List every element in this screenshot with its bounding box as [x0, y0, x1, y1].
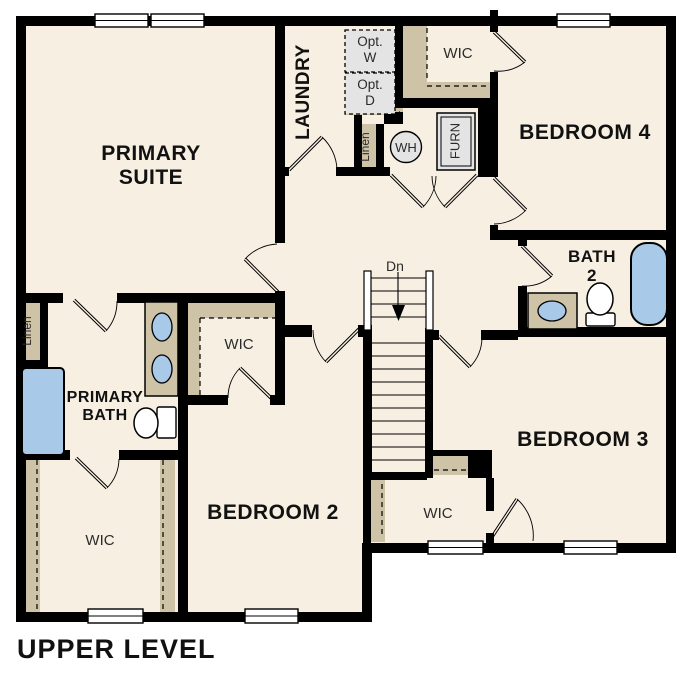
label-linen-primary-line: Linen	[20, 316, 34, 345]
stair-rail	[364, 271, 371, 330]
wall	[40, 303, 48, 363]
wall	[362, 543, 372, 622]
furnace-label: FURN	[447, 123, 462, 159]
wall	[518, 240, 527, 246]
label-stairs-dn: Dn	[386, 258, 404, 274]
wall	[395, 23, 403, 108]
floor-plan-drawing: Opt.WOpt.DWHFURNPRIMARYSUITELAUNDRYWICBE…	[0, 0, 687, 687]
casework-shelf	[188, 303, 200, 397]
wall	[425, 328, 433, 478]
wall	[119, 450, 188, 460]
label-wic-primary-line: WIC	[85, 532, 114, 549]
label-laundry: LAUNDRY	[293, 44, 314, 140]
wall	[362, 543, 676, 553]
wall	[178, 293, 188, 622]
label-wic-bedroom2-line: WIC	[224, 336, 253, 353]
label-bedroom-3-line: BEDROOM 3	[517, 428, 649, 451]
wall	[16, 293, 63, 303]
wall	[365, 472, 427, 480]
wall	[490, 230, 676, 240]
optional-dryer-label: D	[365, 93, 375, 108]
stair-rail	[426, 271, 433, 330]
wall	[16, 360, 48, 368]
bath2-tub-icon	[631, 243, 667, 325]
wall	[285, 325, 312, 337]
casework-shelf	[160, 455, 175, 612]
floor-plan-page: Opt.WOpt.DWHFURNPRIMARYSUITELAUNDRYWICBE…	[0, 0, 687, 687]
optional-dryer-label: Opt.	[357, 77, 383, 92]
optional-washer-label: Opt.	[357, 34, 383, 49]
label-bedroom-4-line: BEDROOM 4	[519, 121, 651, 144]
wall	[363, 478, 371, 553]
label-bedroom-2-line: BEDROOM 2	[207, 501, 339, 524]
label-primary-bath-line: BATH	[82, 407, 127, 424]
label-wic-bedroom4: WIC	[443, 45, 472, 62]
label-bedroom-3: BEDROOM 3	[517, 428, 649, 451]
label-bedroom-2: BEDROOM 2	[207, 501, 339, 524]
wall	[275, 167, 289, 176]
label-primary-bath-line: PRIMARY	[67, 389, 144, 406]
sink-icon	[538, 301, 566, 321]
sink-icon	[152, 355, 172, 383]
label-wic-primary: WIC	[85, 532, 114, 549]
label-bath-2-line: BATH	[568, 247, 616, 266]
wall	[275, 303, 285, 405]
wall	[403, 98, 498, 108]
wall	[468, 452, 492, 478]
optional-washer-label: W	[364, 50, 377, 65]
label-wic-bedroom2: WIC	[224, 336, 253, 353]
label-linen-hall-line: Linen	[358, 132, 372, 161]
label-primary-suite-line: PRIMARY	[101, 142, 201, 165]
level-title: UPPER LEVEL	[17, 634, 216, 665]
toilet-bowl-icon	[134, 408, 158, 438]
wall	[490, 10, 498, 32]
sink-icon	[152, 313, 172, 341]
wall	[478, 107, 492, 177]
casework-shelf	[26, 455, 40, 612]
toilet-bowl-icon	[587, 283, 613, 315]
label-laundry-line: LAUNDRY	[293, 44, 314, 140]
label-linen-primary: Linen	[20, 316, 34, 345]
wall	[16, 612, 372, 622]
casework-shelf	[432, 456, 468, 475]
wall	[481, 330, 518, 340]
wall	[376, 124, 384, 176]
label-stairs-dn-line: Dn	[386, 258, 404, 274]
label-wic-bedroom4-line: WIC	[443, 45, 472, 62]
wall	[117, 293, 285, 303]
wall	[188, 395, 228, 405]
label-wic-bedroom3-line: WIC	[423, 505, 452, 522]
label-bedroom-4: BEDROOM 4	[519, 121, 651, 144]
toilet-tank-icon	[157, 407, 176, 438]
label-primary-suite-line: SUITE	[119, 166, 183, 189]
water-heater-label: WH	[395, 140, 417, 155]
casework-shelf	[188, 303, 275, 318]
casework-shelf	[371, 480, 385, 542]
wall	[486, 478, 494, 511]
wall	[270, 395, 283, 405]
wall	[275, 16, 285, 243]
label-wic-bedroom3: WIC	[423, 505, 452, 522]
primary-shower-icon	[22, 368, 64, 455]
label-linen-hall: Linen	[358, 132, 372, 161]
label-bath-2-line: 2	[587, 266, 597, 285]
wall	[490, 72, 498, 108]
wall	[363, 328, 372, 478]
